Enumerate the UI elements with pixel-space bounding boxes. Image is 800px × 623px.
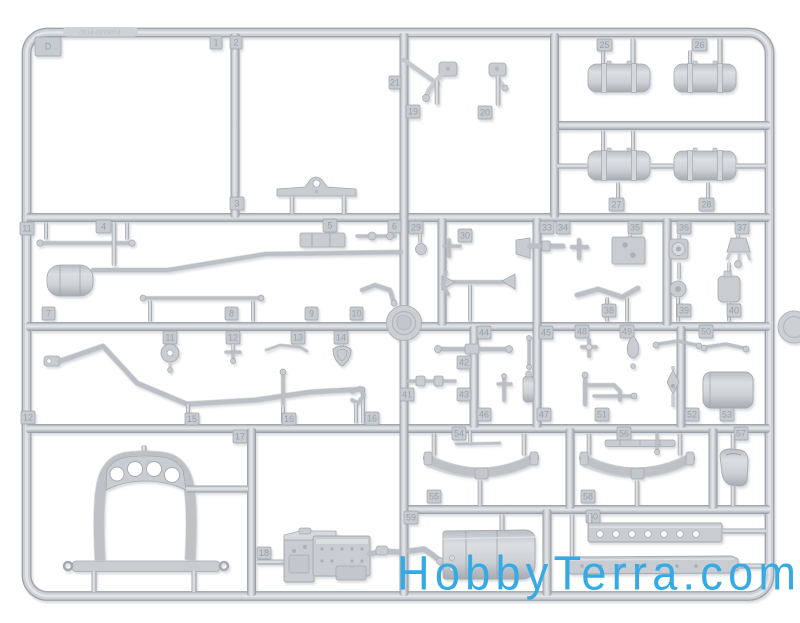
svg-text:3: 3 xyxy=(234,199,239,209)
svg-text:16: 16 xyxy=(367,414,377,424)
svg-text:8: 8 xyxy=(229,309,234,319)
svg-text:16: 16 xyxy=(284,414,294,424)
svg-text:25: 25 xyxy=(599,40,609,50)
svg-text:18: 18 xyxy=(259,548,269,558)
svg-text:43: 43 xyxy=(459,390,469,400)
svg-text:53: 53 xyxy=(722,410,732,420)
svg-text:17: 17 xyxy=(235,432,245,442)
svg-text:21: 21 xyxy=(390,78,400,88)
svg-text:28: 28 xyxy=(701,200,711,210)
svg-text:58: 58 xyxy=(583,492,593,502)
svg-text:27: 27 xyxy=(611,200,621,210)
svg-text:1: 1 xyxy=(213,38,218,48)
svg-text:11: 11 xyxy=(165,333,174,343)
svg-text:33: 33 xyxy=(542,223,552,233)
svg-text:2: 2 xyxy=(233,38,238,48)
svg-text:42: 42 xyxy=(459,358,469,368)
svg-text:38: 38 xyxy=(604,306,614,316)
svg-text:15: 15 xyxy=(187,414,197,424)
svg-text:45: 45 xyxy=(541,328,551,338)
svg-text:10: 10 xyxy=(351,309,361,319)
svg-text:54: 54 xyxy=(454,429,464,439)
svg-text:14: 14 xyxy=(336,333,346,343)
svg-text:35: 35 xyxy=(630,223,640,233)
svg-text:9: 9 xyxy=(309,309,314,319)
svg-text:59: 59 xyxy=(406,513,416,523)
svg-text:13: 13 xyxy=(293,333,303,343)
svg-text:HobbyTerra.com: HobbyTerra.com xyxy=(397,546,796,600)
svg-text:20: 20 xyxy=(480,108,490,118)
svg-text:7: 7 xyxy=(46,309,51,319)
svg-text:D: D xyxy=(45,42,52,52)
svg-text:44: 44 xyxy=(479,328,489,338)
svg-text:57: 57 xyxy=(736,429,746,439)
svg-text:51: 51 xyxy=(597,410,607,420)
svg-text:50: 50 xyxy=(701,327,711,337)
svg-text:30: 30 xyxy=(460,231,470,241)
svg-text:41: 41 xyxy=(402,390,412,400)
svg-text:12: 12 xyxy=(228,333,238,343)
svg-text:0514 0375004: 0514 0375004 xyxy=(79,30,121,37)
svg-text:55: 55 xyxy=(429,492,439,502)
svg-text:36: 36 xyxy=(679,223,689,233)
svg-text:26: 26 xyxy=(694,40,704,50)
svg-text:49: 49 xyxy=(622,327,632,337)
svg-text:48: 48 xyxy=(577,327,587,337)
svg-text:47: 47 xyxy=(539,410,549,420)
svg-text:39: 39 xyxy=(679,306,689,316)
svg-text:19: 19 xyxy=(408,107,418,117)
svg-text:52: 52 xyxy=(687,410,697,420)
svg-text:40: 40 xyxy=(729,306,739,316)
svg-text:37: 37 xyxy=(737,223,747,233)
svg-text:12: 12 xyxy=(23,413,33,423)
svg-text:34: 34 xyxy=(558,223,568,233)
svg-text:56: 56 xyxy=(619,429,629,439)
svg-text:11: 11 xyxy=(22,224,31,234)
svg-text:4: 4 xyxy=(101,222,106,232)
svg-text:6: 6 xyxy=(392,222,397,232)
svg-text:5: 5 xyxy=(327,221,332,231)
svg-text:29: 29 xyxy=(411,223,421,233)
svg-text:46: 46 xyxy=(479,410,489,420)
